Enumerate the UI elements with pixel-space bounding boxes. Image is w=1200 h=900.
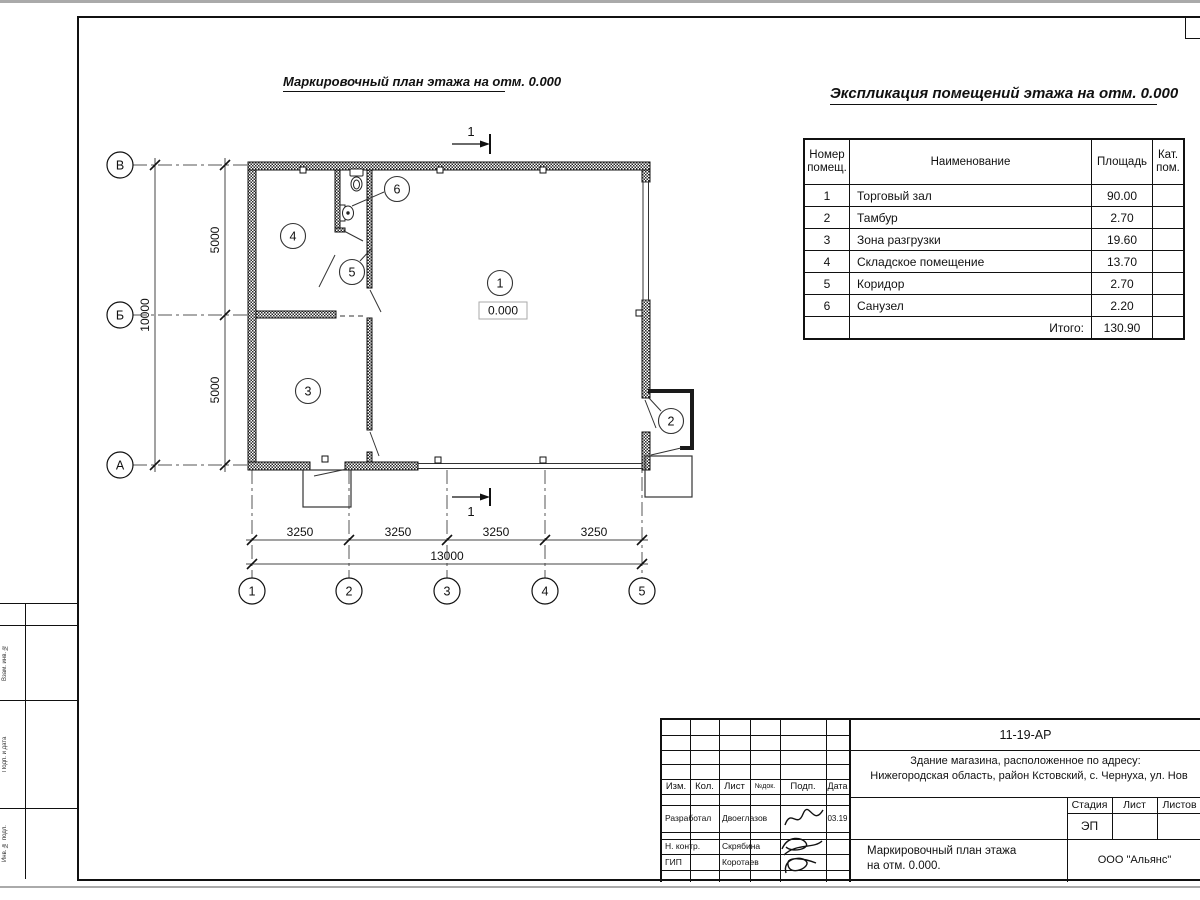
header-cat-l2: пом. xyxy=(1153,162,1183,175)
tb-stage-label: Стадия xyxy=(1067,797,1112,813)
tb-col-izm: Изм. xyxy=(662,779,690,794)
cell-num: 1 xyxy=(804,185,850,207)
cell-num: 2 xyxy=(804,207,850,229)
table-row: 4 Складское помещение 13.70 xyxy=(804,251,1184,273)
dim-span-h3: 3250 xyxy=(483,525,510,539)
room-label-1: 1 xyxy=(497,277,504,291)
dim-span-h2: 3250 xyxy=(385,525,412,539)
header-category: Кат. пом. xyxy=(1153,139,1185,185)
dim-span-h4: 3250 xyxy=(581,525,608,539)
section-label-bottom: 1 xyxy=(467,504,474,519)
table-row: 6 Санузел 2.20 xyxy=(804,295,1184,317)
axis-label-4: 4 xyxy=(542,585,549,599)
tb-name-ncontrol: Скрябина xyxy=(722,839,779,854)
cell-name: Санузел xyxy=(850,295,1092,317)
margin-line-1 xyxy=(0,603,77,604)
corner-cell-hline xyxy=(1185,38,1200,39)
dim-total-height: 10000 xyxy=(138,298,152,332)
axis-label-a: А xyxy=(116,459,125,473)
door-room4 xyxy=(319,255,335,287)
cell-name: Тамбур xyxy=(850,207,1092,229)
room-label-6: 6 xyxy=(394,183,401,197)
tb-company: ООО "Альянс" xyxy=(1067,839,1200,882)
cell-cat xyxy=(1153,251,1185,273)
cell-name: Коридор xyxy=(850,273,1092,295)
dim-total-width: 13000 xyxy=(430,549,464,563)
header-cat-l1: Кат. xyxy=(1153,149,1183,162)
table-total-row: Итого: 130.90 xyxy=(804,317,1184,340)
wall-wc-left xyxy=(335,170,340,228)
cell-area: 2.20 xyxy=(1092,295,1153,317)
header-area: Площадь xyxy=(1092,139,1153,185)
tb-sheets-label: Листов xyxy=(1157,797,1200,813)
wall-left xyxy=(248,170,256,470)
cell-empty xyxy=(804,317,850,340)
room-label-2: 2 xyxy=(668,415,675,429)
cell-name: Торговый зал xyxy=(850,185,1092,207)
cell-area: 2.70 xyxy=(1092,273,1153,295)
tb-role-developer: Разработал xyxy=(665,805,719,832)
header-number: Номер помещ. xyxy=(804,139,850,185)
tb-col-podp: Подп. xyxy=(780,779,826,794)
door-corridor-room1 xyxy=(370,290,381,312)
tb-doc-number: 11-19-АР xyxy=(849,720,1200,750)
cell-cat xyxy=(1153,295,1185,317)
margin-divider xyxy=(25,603,26,879)
sink-icon xyxy=(340,205,354,221)
tb-role-gip: ГИП xyxy=(665,854,719,870)
plan-title: Маркировочный план этажа на отм. 0.000 xyxy=(283,74,505,92)
tb-sheet-title-line2: на отм. 0.000. xyxy=(867,859,1067,874)
wall-wc-jamb xyxy=(335,228,345,232)
wall-right-mid xyxy=(642,300,650,398)
wall-room3-stub xyxy=(367,452,372,462)
porch-right xyxy=(645,456,692,497)
title-block: Изм. Кол. Лист №док. Подп. Дата Разработ… xyxy=(660,718,1200,882)
margin-label-podp: Подп. и дата xyxy=(0,701,12,807)
axis-bubble-labels: В Б А 1 2 3 4 5 xyxy=(116,159,646,599)
tb-date-developer: 03.19 xyxy=(826,805,849,832)
dim-span-v1: 5000 xyxy=(208,226,222,253)
wall-right-bottom xyxy=(642,432,650,470)
cell-area: 90.00 xyxy=(1092,185,1153,207)
wall-top xyxy=(248,162,650,170)
axis-label-3: 3 xyxy=(444,585,451,599)
frame-top-line xyxy=(77,16,1200,18)
wall-wc-right xyxy=(367,170,372,288)
section-mark-top: 1 xyxy=(452,124,490,154)
cell-num: 5 xyxy=(804,273,850,295)
corner-cell-vline xyxy=(1185,18,1186,38)
tb-name-gip: Коротаев xyxy=(722,854,779,870)
explication-title: Экспликация помещений этажа на отм. 0.00… xyxy=(830,85,1157,105)
total-label: Итого: xyxy=(850,317,1092,340)
wall-bottom-2 xyxy=(345,462,418,470)
wall-room4-bottom xyxy=(256,311,336,318)
header-number-l1: Номер xyxy=(805,149,849,162)
header-name: Наименование xyxy=(850,139,1092,185)
room-label-5: 5 xyxy=(349,266,356,280)
tb-address-line1: Здание магазина, расположенное по адресу… xyxy=(849,754,1200,769)
tb-col-list: Лист xyxy=(719,779,750,794)
axis-label-v: В xyxy=(116,159,124,173)
door-tambour-exit xyxy=(651,448,681,455)
table-row: 3 Зона разгрузки 19.60 xyxy=(804,229,1184,251)
dim-span-v2: 5000 xyxy=(208,376,222,403)
signature-ncontrol-gip xyxy=(776,833,828,881)
axis-label-2: 2 xyxy=(346,585,353,599)
wall-room3-partition xyxy=(367,318,372,430)
tb-address-line2: Нижегородская область, район Кстовский, … xyxy=(849,769,1200,784)
tb-col-ndok: №док. xyxy=(750,779,780,794)
table-row: 5 Коридор 2.70 xyxy=(804,273,1184,295)
tb-col-kol: Кол. xyxy=(690,779,719,794)
dim-span-h1: 3250 xyxy=(287,525,314,539)
cell-cat xyxy=(1153,207,1185,229)
level-mark-value: 0.000 xyxy=(488,304,518,318)
cell-cat xyxy=(1153,273,1185,295)
tb-name-developer: Двоеглазов xyxy=(722,805,779,832)
margin-label-inv: Инв. № подл. xyxy=(0,809,12,878)
frame-left-line xyxy=(77,16,79,881)
room-label-3: 3 xyxy=(305,385,312,399)
explication-table: Номер помещ. Наименование Площадь Кат. п… xyxy=(803,138,1185,340)
section-mark-bottom: 1 xyxy=(452,488,490,519)
header-number-l2: помещ. xyxy=(805,162,849,175)
table-row: 2 Тамбур 2.70 xyxy=(804,207,1184,229)
tb-hline xyxy=(662,794,849,795)
tb-role-ncontrol: Н. контр. xyxy=(665,839,719,854)
cell-cat xyxy=(1153,229,1185,251)
tb-col-data: Дата xyxy=(826,779,849,794)
cell-area: 19.60 xyxy=(1092,229,1153,251)
cell-area: 13.70 xyxy=(1092,251,1153,273)
table-row: 1 Торговый зал 90.00 xyxy=(804,185,1184,207)
cell-name: Складское помещение xyxy=(850,251,1092,273)
wall-bottom-1 xyxy=(248,462,310,470)
signature-developer xyxy=(782,804,826,832)
cell-empty xyxy=(1153,317,1185,340)
windows xyxy=(418,182,650,469)
floor-plan: 10000 5000 5000 3250 3250 3250 3250 1300… xyxy=(85,115,730,615)
axis-label-5: 5 xyxy=(639,585,646,599)
walls xyxy=(248,162,650,470)
cell-num: 4 xyxy=(804,251,850,273)
tb-stage-value: ЭП xyxy=(1067,813,1112,839)
tb-sheet-label: Лист xyxy=(1112,797,1157,813)
axis-bubbles xyxy=(107,152,655,604)
tb-vline xyxy=(719,720,720,882)
room-label-4: 4 xyxy=(290,230,297,244)
section-label-top: 1 xyxy=(467,124,474,139)
cell-name: Зона разгрузки xyxy=(850,229,1092,251)
cell-num: 3 xyxy=(804,229,850,251)
explication-header-row: Номер помещ. Наименование Площадь Кат. п… xyxy=(804,139,1184,185)
toilet-icon xyxy=(350,169,363,191)
drawing-sheet: { "plan_title": "Маркировочный план этаж… xyxy=(0,0,1200,900)
cell-cat xyxy=(1153,185,1185,207)
cell-area: 2.70 xyxy=(1092,207,1153,229)
total-value: 130.90 xyxy=(1092,317,1153,340)
cell-num: 6 xyxy=(804,295,850,317)
tb-hline xyxy=(662,750,1200,751)
door-wc xyxy=(344,231,363,241)
level-mark: 0.000 xyxy=(479,302,527,319)
axis-label-b: Б xyxy=(116,309,124,323)
sheet-bottom-edge xyxy=(0,886,1200,888)
axis-label-1: 1 xyxy=(249,585,256,599)
tb-hline xyxy=(662,735,849,736)
margin-label-vzam: Взам. инв. № xyxy=(0,626,12,699)
wall-right-top xyxy=(642,170,650,182)
sheet-top-edge xyxy=(0,0,1200,3)
tb-sheet-title-line1: Маркировочный план этажа xyxy=(867,844,1067,859)
tb-hline xyxy=(662,764,849,765)
dimension-lines xyxy=(155,158,648,564)
dimension-labels: 10000 5000 5000 3250 3250 3250 3250 1300… xyxy=(138,226,608,563)
porch-left xyxy=(303,470,351,507)
